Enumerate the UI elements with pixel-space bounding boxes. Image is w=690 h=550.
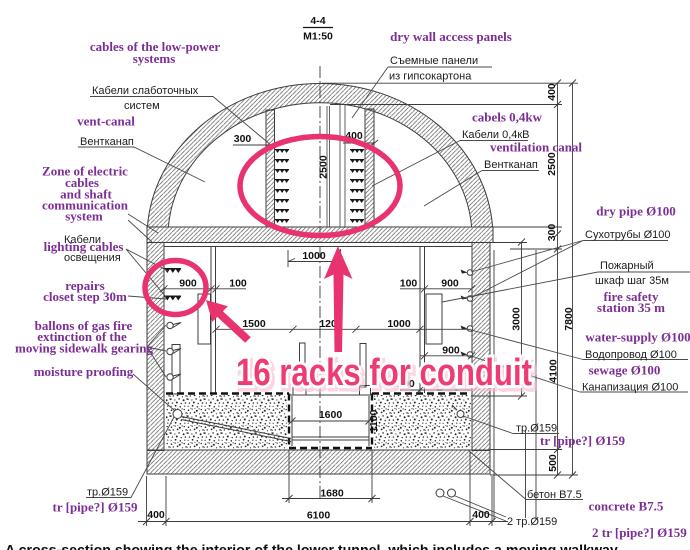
svg-text:тр.Ø159: тр.Ø159	[87, 487, 128, 499]
svg-text:1680: 1680	[320, 488, 344, 500]
svg-text:16 racks for conduit: 16 racks for conduit	[236, 352, 532, 394]
svg-text:2 tr [pipe?] Ø159: 2 tr [pipe?] Ø159	[592, 525, 687, 540]
svg-text:water-supply Ø100: water-supply Ø100	[585, 330, 690, 345]
svg-text:lighting cables: lighting cables	[44, 239, 124, 254]
svg-text:300: 300	[546, 224, 558, 242]
svg-text:cabels 0,4kw: cabels 0,4kw	[472, 110, 543, 125]
svg-text:2500: 2500	[318, 155, 330, 179]
svg-text:из гипсокартона: из гипсокартона	[389, 71, 472, 83]
svg-text:moisture proofing: moisture proofing	[34, 364, 134, 379]
svg-text:900: 900	[179, 278, 197, 290]
svg-text:1000: 1000	[302, 250, 326, 262]
svg-text:Канапизация Ø100: Канапизация Ø100	[582, 382, 678, 394]
svg-text:1000: 1000	[387, 318, 411, 330]
svg-text:300: 300	[234, 133, 252, 145]
svg-text:Вентканап: Вентканап	[484, 159, 538, 171]
svg-text:Вентканап: Вентканап	[80, 136, 134, 148]
svg-text:4100: 4100	[548, 359, 560, 383]
svg-text:900: 900	[441, 278, 459, 290]
svg-text:1600: 1600	[319, 409, 343, 421]
svg-text:бетон В7.5: бетон В7.5	[527, 489, 582, 501]
svg-text:A cross-section showing the in: A cross-section showing the interior of …	[5, 543, 618, 550]
svg-text:system: system	[65, 209, 103, 224]
svg-text:2500: 2500	[546, 152, 558, 176]
svg-text:station 35 m: station 35 m	[597, 300, 665, 315]
svg-text:moving sidewalk gearing: moving sidewalk gearing	[15, 341, 153, 356]
svg-text:4-4: 4-4	[310, 15, 325, 27]
svg-text:ventilation canal: ventilation canal	[490, 140, 582, 155]
svg-text:1500: 1500	[242, 318, 266, 330]
svg-text:100: 100	[400, 278, 418, 290]
svg-text:М1:50: М1:50	[303, 31, 333, 43]
svg-text:systems: systems	[133, 51, 176, 66]
svg-text:500: 500	[547, 454, 559, 472]
svg-text:Пожарный: Пожарный	[600, 260, 654, 272]
svg-text:tr [pipe?] Ø159: tr [pipe?] Ø159	[540, 433, 625, 448]
svg-text:400: 400	[546, 83, 558, 101]
svg-text:vent-canal: vent-canal	[77, 114, 135, 129]
svg-text:dry wall access panels: dry wall access panels	[390, 29, 512, 44]
svg-text:систем: систем	[124, 100, 160, 112]
svg-text:100: 100	[229, 278, 247, 290]
svg-text:7800: 7800	[563, 307, 575, 331]
svg-text:400: 400	[147, 509, 165, 521]
svg-text:sewage Ø100: sewage Ø100	[589, 363, 661, 378]
svg-text:Сухотрубы Ø100: Сухотрубы Ø100	[585, 229, 671, 241]
svg-text:1100: 1100	[368, 409, 380, 432]
svg-text:6100: 6100	[307, 510, 331, 522]
svg-text:2 тр.Ø159: 2 тр.Ø159	[507, 516, 557, 528]
svg-text:шкаф шаг 35м: шкаф шаг 35м	[595, 275, 669, 287]
svg-text:3000: 3000	[511, 307, 523, 331]
svg-text:dry pipe Ø100: dry pipe Ø100	[596, 204, 675, 219]
svg-text:closet step 30m: closet step 30m	[43, 289, 127, 304]
svg-text:tr [pipe?] Ø159: tr [pipe?] Ø159	[53, 500, 138, 515]
svg-text:concrete B7.5: concrete B7.5	[589, 499, 664, 514]
svg-text:Кабели слаботочных: Кабели слаботочных	[92, 85, 199, 97]
svg-text:400: 400	[472, 509, 490, 521]
svg-text:Водопровод Ø100: Водопровод Ø100	[585, 349, 677, 361]
svg-text:Съемные панели: Съемные панели	[390, 55, 478, 67]
